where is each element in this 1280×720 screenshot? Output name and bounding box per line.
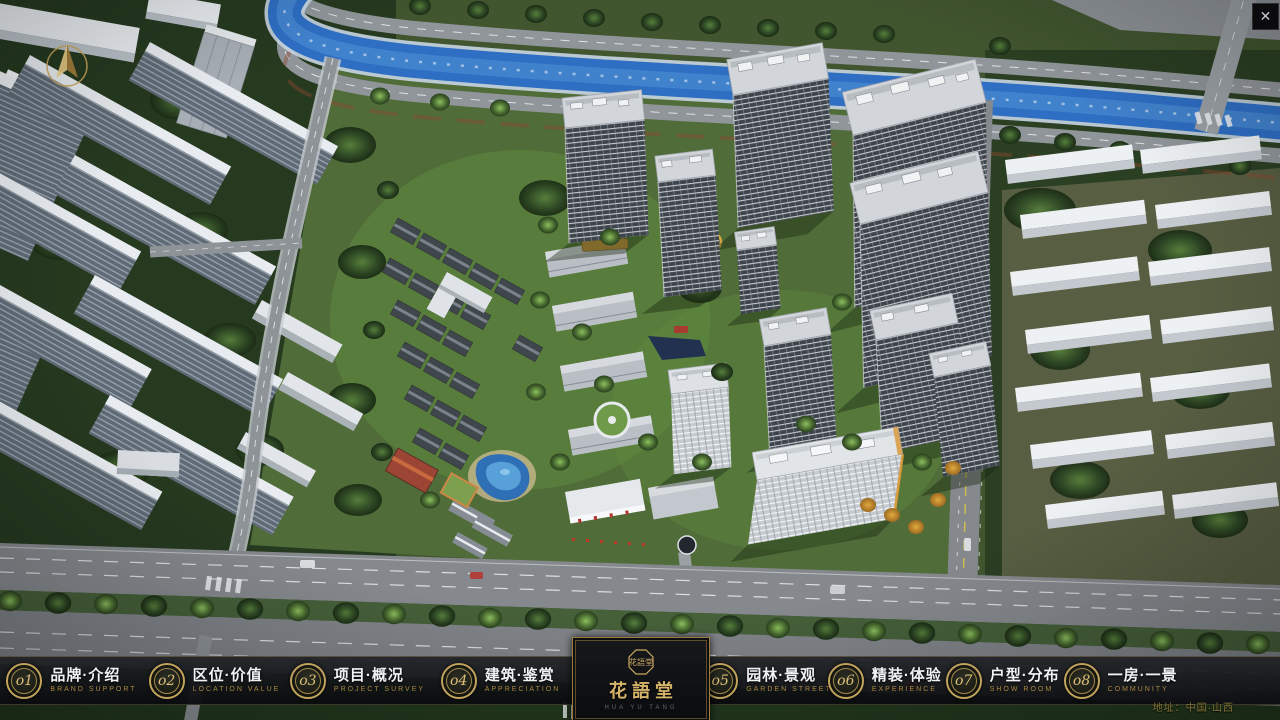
svg-text:花語堂: 花語堂 [629, 657, 653, 667]
nav-label-zh: 园林·景观 [746, 668, 816, 683]
nav-label-en: PROJECT SURVEY [334, 686, 425, 693]
nav-label-en: COMMUNITY [1108, 686, 1169, 693]
nav-item-project-survey[interactable]: o3 项目·概况PROJECT SURVEY [286, 657, 429, 704]
close-button[interactable]: ✕ [1252, 3, 1279, 30]
nav-label-zh: 精装·体验 [872, 668, 942, 683]
seal-icon: 花語堂 [628, 649, 654, 675]
nav-item-architecture[interactable]: o4 建筑·鉴赏APPRECIATION [429, 657, 572, 704]
vignette-overlay [0, 0, 1280, 720]
nav-item-floorplan[interactable]: o7 户型·分布SHOW ROOM [944, 657, 1062, 704]
nav-item-room-view[interactable]: o8 一房·一景COMMUNITY [1062, 657, 1180, 704]
nav-label-en: SHOW ROOM [990, 686, 1054, 693]
nav-item-brand-intro[interactable]: o1 品牌·介绍BRAND SUPPORT [0, 657, 143, 704]
nav-badge-icon: o6 [828, 663, 864, 699]
nav-label-en: GARDEN STREET [746, 686, 832, 693]
nav-item-location-value[interactable]: o2 区位·价值LOCATION VALUE [143, 657, 286, 704]
nav-label-en: APPRECIATION [485, 686, 561, 693]
nav-label-zh: 建筑·鉴赏 [485, 668, 555, 683]
nav-label-en: BRAND SUPPORT [50, 686, 136, 693]
nav-badge-icon: o8 [1064, 663, 1100, 699]
project-address: 地址：中国·山西 [1153, 699, 1234, 714]
nav-label-zh: 品牌·介绍 [50, 668, 120, 683]
nav-label-zh: 区位·价值 [193, 668, 263, 683]
nav-label-zh: 户型·分布 [990, 668, 1060, 683]
nav-badge-icon: o2 [149, 663, 185, 699]
nav-right-gap [1180, 657, 1280, 704]
nav-item-decor-experience[interactable]: o6 精装·体验EXPERIENCE [826, 657, 944, 704]
presentation-window: o1 品牌·介绍BRAND SUPPORT o2 区位·价值LOCATION V… [0, 0, 1280, 720]
nav-badge-icon: o7 [946, 663, 982, 699]
masterplan-canvas[interactable] [0, 0, 1280, 720]
logo-title: 花語堂 [604, 677, 678, 703]
logo-subtitle: HUA YU TANG [604, 705, 677, 711]
nav-label-zh: 一房·一景 [1108, 668, 1178, 683]
nav-label-en: LOCATION VALUE [193, 686, 281, 693]
logo-panel[interactable]: 花語堂 花語堂 HUA YU TANG [572, 637, 710, 720]
nav-label-en: EXPERIENCE [872, 686, 937, 693]
nav-label-zh: 项目·概况 [334, 668, 404, 683]
nav-badge-icon: o1 [6, 663, 42, 699]
nav-group-right: o5 园林·景观GARDEN STREET o6 精装·体验EXPERIENCE… [708, 657, 1280, 704]
nav-item-garden-landscape[interactable]: o5 园林·景观GARDEN STREET [708, 657, 826, 704]
nav-group-left: o1 品牌·介绍BRAND SUPPORT o2 区位·价值LOCATION V… [0, 657, 572, 704]
nav-badge-icon: o4 [441, 663, 477, 699]
nav-badge-icon: o3 [290, 663, 326, 699]
